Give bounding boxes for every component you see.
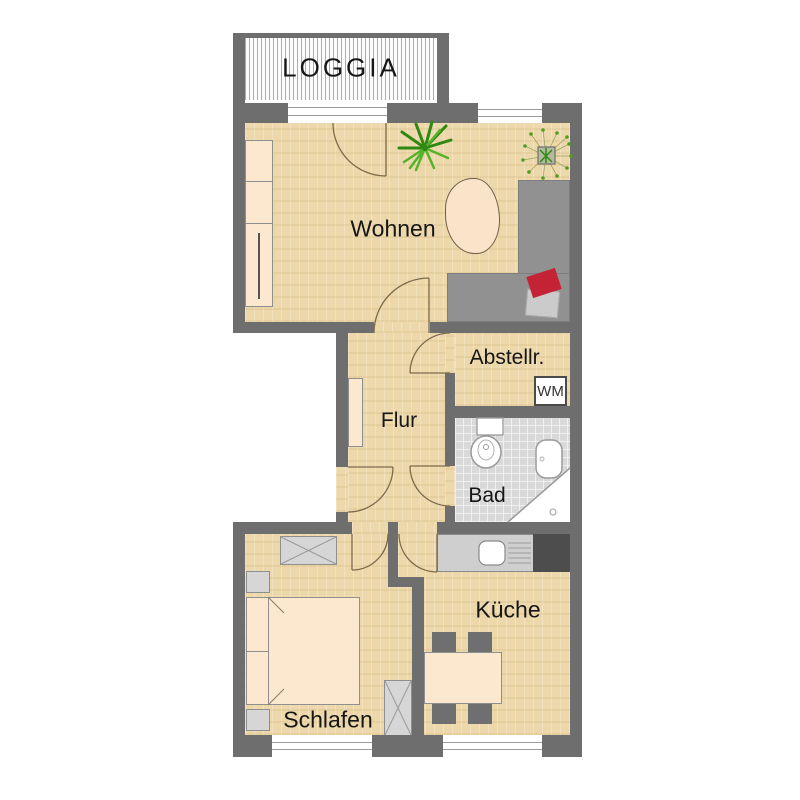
nightstand (246, 571, 270, 593)
wall (437, 522, 570, 534)
side-table (445, 178, 500, 254)
shelf-handle (258, 233, 260, 299)
dining-table (424, 652, 502, 704)
room-label-bedroom: Schlafen (283, 707, 373, 734)
wall (542, 735, 582, 757)
wall (233, 534, 245, 757)
wall (445, 373, 455, 466)
wardrobe (384, 680, 412, 736)
nightstand (246, 709, 270, 731)
hallway-sideboard (348, 378, 363, 447)
wall (233, 735, 272, 757)
room-label-kitchen: Küche (475, 597, 540, 624)
living-room-window (478, 103, 542, 123)
washing-machine-label: WM (537, 383, 564, 400)
shelf-divider (246, 223, 272, 224)
wall (372, 735, 443, 757)
wall (570, 103, 582, 757)
bed-headboard-line (268, 598, 269, 704)
wall (412, 577, 424, 745)
living-room-shelf (245, 140, 273, 307)
entrance-doorway-floor (336, 467, 348, 512)
double-bed (246, 597, 360, 705)
bed-pillow-divider (247, 651, 268, 652)
wall (233, 522, 352, 534)
doorway-floor (374, 322, 430, 333)
room-label-hall: Flur (381, 409, 417, 433)
floor-plan: WM (0, 0, 800, 800)
room-label-bath: Bad (468, 484, 505, 508)
loggia-parapet (245, 33, 437, 38)
doorway-floor (398, 522, 437, 534)
shelf-divider (246, 181, 272, 182)
washing-machine: WM (534, 376, 567, 406)
wardrobe (280, 536, 337, 565)
wall (445, 406, 570, 418)
doorway-floor (445, 333, 455, 373)
room-label-loggia: LOGGIA (282, 53, 400, 84)
bedroom-window (272, 735, 372, 757)
wall (233, 322, 374, 333)
wall (233, 33, 245, 103)
wall (388, 522, 398, 577)
wall (437, 33, 449, 103)
balcony-door-window (288, 100, 387, 123)
doorway-floor (445, 466, 455, 506)
wall (430, 322, 570, 333)
chair (432, 704, 456, 724)
stove (533, 534, 570, 572)
chair (432, 632, 456, 652)
room-label-living: Wohnen (350, 216, 435, 243)
kitchen-window (443, 735, 542, 757)
wall (336, 333, 348, 467)
chair (468, 704, 492, 724)
doorway-floor (352, 522, 388, 534)
chair (468, 632, 492, 652)
room-label-storage: Abstellr. (470, 346, 545, 370)
wall (233, 103, 245, 333)
